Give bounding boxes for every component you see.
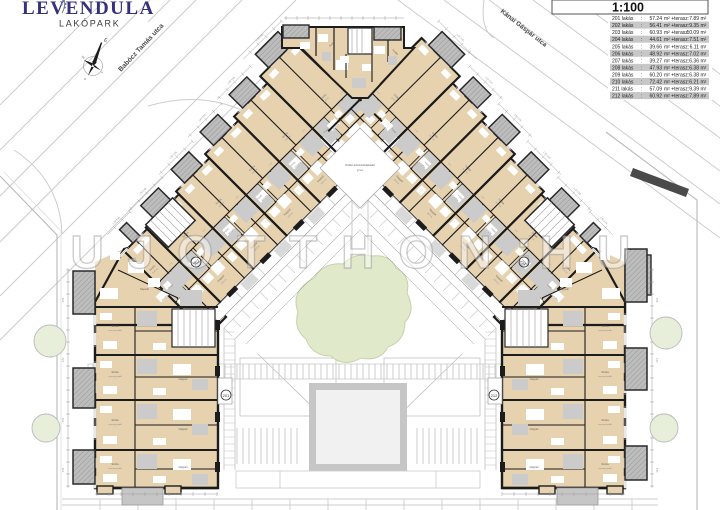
svg-text:szennyt padló: szennyt padló	[598, 329, 612, 332]
svg-text:6.11: 6.11	[690, 44, 700, 50]
svg-text:m² +terasz:: m² +terasz:	[664, 72, 689, 78]
svg-text::: :	[641, 87, 642, 93]
svg-text:szennyt padló: szennyt padló	[598, 467, 612, 470]
svg-text:209 lakás: 209 lakás	[612, 72, 634, 78]
svg-text:m²: m²	[701, 72, 707, 78]
svg-text:1:100: 1:100	[612, 1, 644, 15]
svg-text:212: 212	[491, 393, 498, 398]
svg-text:Nappali: Nappali	[560, 287, 569, 291]
svg-text:208 lakás: 208 lakás	[612, 65, 634, 71]
svg-text:3,80: 3,80	[63, 297, 65, 302]
svg-text:szennyt padló: szennyt padló	[108, 329, 122, 332]
svg-text:m²: m²	[701, 30, 707, 36]
svg-text:6.38: 6.38	[689, 72, 699, 78]
svg-text:m²: m²	[701, 65, 707, 71]
svg-text:7.51: 7.51	[689, 37, 699, 43]
svg-text:szennyt padló: szennyt padló	[598, 423, 612, 426]
svg-text:39.66: 39.66	[649, 44, 662, 50]
svg-text:m² +terasz:: m² +terasz:	[664, 44, 689, 50]
svg-text:56.41: 56.41	[649, 23, 662, 29]
svg-text:47.93: 47.93	[649, 65, 662, 71]
svg-text::: :	[641, 23, 642, 29]
svg-text:gmsz: gmsz	[357, 169, 364, 172]
svg-text:m² +terasz:: m² +terasz:	[664, 16, 689, 22]
svg-text:Szoba: Szoba	[601, 418, 609, 422]
svg-text:39.27: 39.27	[649, 58, 662, 64]
svg-text:57.09: 57.09	[649, 87, 662, 93]
svg-text:Nappali: Nappali	[179, 377, 188, 381]
svg-text:m²: m²	[701, 94, 707, 100]
svg-text:3,80: 3,80	[63, 417, 65, 422]
svg-text:72.42: 72.42	[649, 80, 662, 86]
svg-text:206 lakás: 206 lakás	[612, 51, 634, 57]
svg-text:Szoba: Szoba	[601, 370, 609, 374]
svg-text:szennyt padló: szennyt padló	[108, 375, 122, 378]
svg-text:7.89: 7.89	[689, 94, 699, 100]
svg-text:m² +terasz:: m² +terasz:	[664, 65, 689, 71]
svg-text::: :	[641, 72, 642, 78]
svg-text:m² +terasz:: m² +terasz:	[664, 30, 689, 36]
svg-text::: :	[641, 65, 642, 71]
svg-text:57.24: 57.24	[649, 16, 662, 22]
svg-text:Szoba: Szoba	[111, 370, 119, 374]
svg-text:m²: m²	[701, 58, 707, 64]
svg-text:Külső szinti közlekedő: Külső szinti közlekedő	[345, 163, 375, 167]
svg-text:9.39: 9.39	[689, 87, 699, 93]
svg-text:Nappali: Nappali	[140, 287, 149, 291]
svg-text:HU: HU	[540, 226, 654, 278]
svg-text:Nappali: Nappali	[530, 465, 539, 469]
svg-text:207 lakás: 207 lakás	[612, 58, 634, 64]
svg-text:48.92: 48.92	[649, 51, 662, 57]
svg-text:60.93: 60.93	[649, 30, 662, 36]
svg-text:6.21: 6.21	[689, 80, 699, 86]
svg-text:Nappali: Nappali	[530, 377, 539, 381]
svg-text:3,80: 3,80	[63, 357, 65, 362]
svg-text:60.20: 60.20	[649, 72, 662, 78]
svg-text::: :	[641, 44, 642, 50]
svg-text:Nappali: Nappali	[530, 427, 539, 431]
svg-text:m²: m²	[701, 16, 707, 22]
svg-text:201: 201	[223, 393, 230, 398]
svg-text:m²: m²	[701, 37, 707, 43]
svg-text:3,80: 3,80	[655, 358, 657, 363]
svg-text:201 lakás: 201 lakás	[612, 16, 634, 22]
svg-text:3,80: 3,80	[655, 468, 657, 473]
svg-text:60.92: 60.92	[649, 94, 662, 100]
svg-text:m² +terasz:: m² +terasz:	[664, 80, 689, 86]
svg-text:Nappali: Nappali	[179, 465, 188, 469]
svg-text::: :	[641, 51, 642, 57]
svg-text:3,80: 3,80	[63, 467, 65, 472]
svg-text:44.61: 44.61	[649, 37, 662, 43]
svg-text:szennyt padló: szennyt padló	[108, 467, 122, 470]
svg-text:Szoba: Szoba	[111, 418, 119, 422]
svg-text:210 lakás: 210 lakás	[612, 80, 634, 86]
svg-text:7.89: 7.89	[689, 16, 699, 22]
svg-text:m²: m²	[701, 87, 707, 93]
svg-text::: :	[641, 30, 642, 36]
svg-text:szennyt padló: szennyt padló	[108, 423, 122, 426]
svg-text:m² +terasz:: m² +terasz:	[664, 51, 689, 57]
svg-text:6.36: 6.36	[689, 58, 699, 64]
svg-text:m² +terasz:: m² +terasz:	[664, 94, 689, 100]
svg-text:UJOTTHON: UJOTTHON	[71, 226, 516, 278]
svg-text::: :	[641, 37, 642, 43]
svg-text:3,80: 3,80	[655, 298, 657, 303]
svg-text:m² +terasz:: m² +terasz:	[664, 23, 689, 29]
svg-text:Nappali: Nappali	[179, 427, 188, 431]
svg-text:Szoba: Szoba	[601, 324, 609, 328]
svg-text:Szoba: Szoba	[111, 324, 119, 328]
svg-text:m²: m²	[701, 23, 707, 29]
svg-text:m²: m²	[701, 51, 707, 57]
svg-text:Szoba: Szoba	[111, 462, 119, 466]
svg-text:6.38: 6.38	[689, 65, 699, 71]
svg-text:m² +terasz:: m² +terasz:	[664, 87, 689, 93]
svg-text:m²: m²	[701, 80, 707, 86]
svg-text:7.02: 7.02	[689, 51, 699, 57]
svg-text:szennyt padló: szennyt padló	[598, 375, 612, 378]
svg-text:203 lakás: 203 lakás	[612, 30, 634, 36]
svg-text:212 lakás: 212 lakás	[612, 94, 634, 100]
svg-text:m²: m²	[701, 44, 707, 50]
svg-text:LEVENDULA: LEVENDULA	[22, 0, 155, 19]
svg-text:204 lakás: 204 lakás	[612, 37, 634, 43]
svg-text:202 lakás: 202 lakás	[612, 23, 634, 29]
svg-text::: :	[641, 58, 642, 64]
svg-text:Szoba: Szoba	[601, 462, 609, 466]
svg-text:LAKÓPARK: LAKÓPARK	[59, 19, 120, 29]
svg-text:9.35: 9.35	[689, 23, 699, 29]
svg-text:m² +terasz:: m² +terasz:	[664, 37, 689, 43]
svg-text:10.09: 10.09	[686, 30, 699, 36]
svg-text::: :	[641, 94, 642, 100]
svg-text:m² +terasz:: m² +terasz:	[664, 58, 689, 64]
svg-text:211 lakás: 211 lakás	[612, 87, 634, 93]
svg-text::: :	[641, 80, 642, 86]
svg-text::: :	[641, 16, 642, 22]
svg-text:205 lakás: 205 lakás	[612, 44, 634, 50]
